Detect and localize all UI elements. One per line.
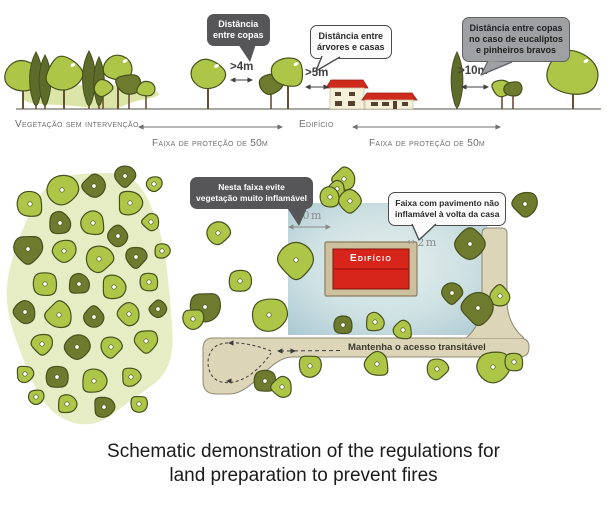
undergrowth: [22, 85, 159, 109]
caption-line-2: land preparation to prevent fires: [0, 464, 607, 488]
tree-canopy: [103, 55, 132, 80]
plan-tree: [123, 368, 141, 386]
plan-tree: [328, 180, 344, 197]
bubble-non-flammable-pavement: Faixa com pavimento não inflamável à vol…: [388, 192, 506, 226]
plan-tree: [254, 370, 276, 391]
cypress-tree: [83, 51, 96, 105]
bubble-line: Distância entre copas: [469, 23, 563, 34]
plan-tree: [490, 285, 510, 306]
plan-tree: [183, 310, 204, 330]
plan-tree: [367, 312, 385, 330]
plan-tree: [45, 301, 71, 328]
tree-canopy: [116, 75, 141, 94]
turning-loop: [208, 340, 342, 383]
caption-line-1: Schematic demonstration of the regulatio…: [0, 440, 607, 464]
bubble-line: vegetação muito inflamável: [196, 193, 307, 204]
tree-canopy: [137, 81, 155, 95]
plan-tree: [69, 274, 89, 294]
tree-canopy: [5, 60, 42, 90]
label-protection-strip-right: Faixa de proteção de 50m: [369, 138, 485, 149]
plan-tree: [364, 351, 388, 375]
measurement-5m: >5m: [305, 67, 328, 79]
bubble-line: Faixa com pavimento não: [395, 198, 499, 209]
plan-tree: [126, 247, 147, 268]
tree-canopy: [191, 59, 226, 88]
plan-tree: [108, 225, 128, 247]
bubble-line: no caso de eucaliptos: [469, 34, 563, 45]
label-building: Edifício: [299, 119, 334, 130]
plan-tree: [252, 299, 287, 331]
plan-tree: [95, 397, 115, 417]
plan-tree: [81, 211, 104, 235]
plan-tree: [190, 294, 220, 322]
house-roof: [326, 80, 368, 88]
plan-tree: [101, 337, 122, 358]
plan-tree: [332, 167, 355, 190]
plan-tree: [427, 359, 448, 380]
plan-tree: [50, 211, 71, 233]
measurement-10m: >10m: [458, 65, 488, 77]
plan-tree: [455, 228, 486, 260]
house-window: [335, 92, 341, 96]
bubble-line: inflamável à volta da casa: [395, 209, 499, 220]
plan-tree: [512, 192, 537, 217]
plan-tree: [52, 240, 76, 262]
plan-tree: [64, 335, 90, 360]
plan-tree: [142, 213, 159, 230]
plan-tree: [334, 316, 352, 333]
plan-tree: [299, 356, 321, 377]
bubble-tails-overlay: [0, 0, 607, 509]
bubble-line: Distância: [213, 19, 264, 30]
tree-canopy: [259, 74, 283, 94]
house: [326, 80, 417, 109]
bubble-crown-distance: Distância entre copas: [207, 14, 270, 46]
label-vegetation-no-intervention: Vegetação sem intervenção: [15, 119, 139, 130]
plan-tree: [83, 369, 107, 392]
plan-tree: [131, 397, 147, 413]
scene-illustration: [0, 0, 607, 509]
cypress-tree: [94, 57, 105, 106]
measurement-10m-strip: 10m: [294, 209, 323, 222]
plan-tree: [17, 191, 41, 216]
house-window: [402, 102, 408, 106]
bubble-line: árvores e casas: [317, 42, 385, 53]
plan-tree: [271, 376, 292, 397]
plan-tree: [477, 352, 510, 383]
cypress-tree: [451, 52, 463, 107]
plan-tree: [59, 395, 77, 413]
bubble-line: Nesta faixa evite: [196, 182, 307, 193]
plan-tree: [14, 237, 43, 265]
tree-trunks: [23, 68, 573, 109]
house-window: [349, 92, 355, 96]
plan-tree: [461, 292, 493, 325]
tree-canopy: [492, 80, 512, 97]
cluster-trees: [13, 166, 170, 417]
tree-canopy: [94, 79, 113, 96]
measurement-value: 10m: [294, 209, 323, 222]
plan-tree: [31, 334, 52, 355]
house-wall: [330, 88, 364, 109]
plan-tree: [320, 187, 339, 207]
plan-tree: [119, 191, 142, 214]
tree-canopy: [271, 58, 302, 86]
house-window: [335, 101, 342, 106]
bubble-avoid-flammable-vegetation: Nesta faixa evite vegetação muito inflam…: [190, 177, 313, 209]
building-plan: [325, 242, 417, 296]
bubble-tail: [238, 44, 256, 62]
bubble-line: entre copas: [213, 30, 264, 41]
bubble-tree-house-distance: Distância entre árvores e casas: [310, 25, 392, 59]
tree-canopy: [504, 82, 522, 96]
house-window: [382, 102, 389, 106]
plan-tree: [84, 306, 104, 328]
tree-canopy: [46, 56, 83, 90]
plan-tree: [47, 175, 79, 205]
bottom-arrows: [288, 224, 331, 229]
building-frame: [325, 242, 417, 296]
house-door: [393, 101, 397, 109]
plan-tree: [393, 320, 411, 338]
fire-prevention-schematic: Distância entre copas Distância entre ár…: [0, 0, 607, 509]
plan-tree: [82, 174, 106, 197]
cypress-tree: [39, 55, 51, 105]
plan-tree: [149, 300, 167, 318]
plan-tree: [442, 283, 463, 304]
access-road-label: Mantenha o acesso transitável: [348, 342, 486, 353]
plan-tree: [33, 273, 56, 296]
bubble-line: Distância entre: [317, 31, 385, 42]
plan-tree: [229, 270, 251, 291]
house-wall: [365, 100, 413, 109]
vegetation-blob: [7, 173, 173, 424]
plan-tree: [207, 222, 231, 245]
double-arrow-icon: ↔: [407, 237, 415, 248]
measurement-2m-strip: ↔ 2m: [407, 236, 438, 249]
plan-tree: [140, 273, 158, 291]
house-window: [348, 101, 355, 106]
plan-tree: [339, 189, 362, 213]
plan-tree: [86, 246, 113, 272]
figure-caption: Schematic demonstration of the regulatio…: [0, 440, 607, 488]
plan-tree: [46, 366, 68, 387]
plan-tree: [17, 366, 33, 382]
measurement-value: 2m: [417, 236, 437, 249]
plan-tree: [115, 166, 136, 187]
label-protection-strip-left: Faixa de proteção de 50m: [152, 138, 268, 149]
bubble-line: e pinheiros bravos: [469, 45, 563, 56]
plan-tree: [103, 275, 126, 299]
plan-tree: [155, 244, 170, 258]
vegetation-area: [7, 173, 173, 424]
house-window: [371, 102, 378, 106]
bubble-eucalyptus-distance: Distância entre copas no caso de eucalip…: [462, 17, 570, 62]
plan-tree: [117, 303, 139, 326]
measurement-4m: >4m: [230, 61, 253, 73]
plan-tree: [278, 242, 314, 279]
plan-tree: [28, 390, 44, 404]
side-path: [466, 228, 524, 338]
plan-tree: [146, 177, 162, 192]
building-plan-label: Edifício: [333, 253, 409, 264]
plan-tree: [13, 301, 35, 324]
house-roof: [362, 93, 417, 100]
cypress-tree: [30, 52, 43, 105]
plan-tree: [134, 331, 157, 353]
plan-tree: [505, 353, 523, 371]
